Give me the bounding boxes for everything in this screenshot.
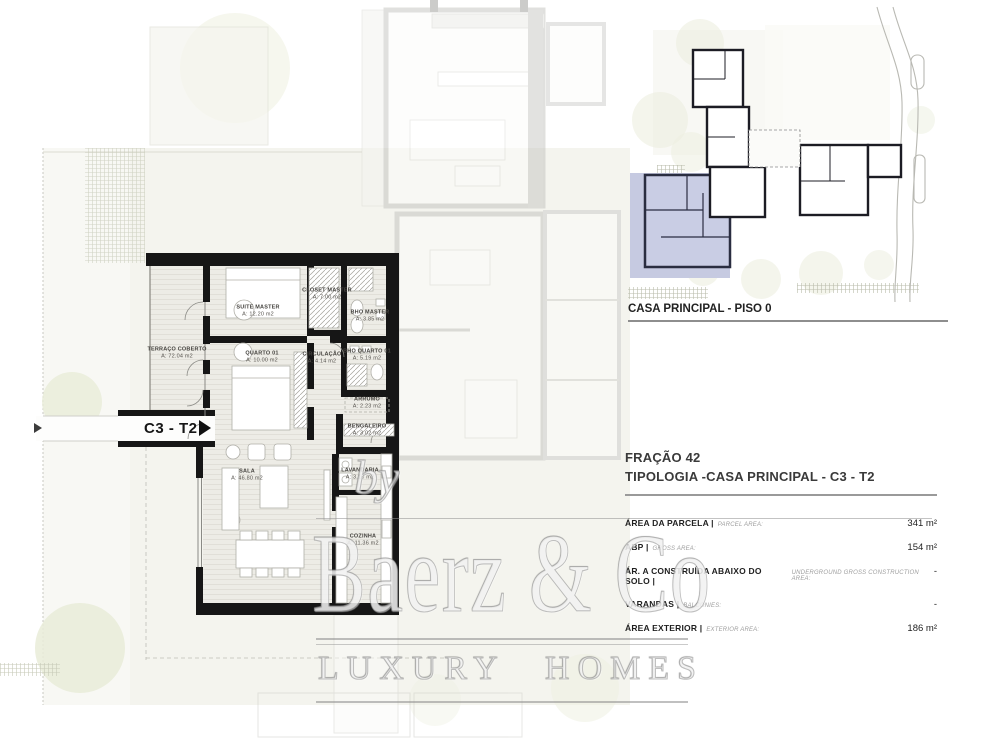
room-label-lavandaria: LAVANDARIAA: 3.10 m2 — [341, 468, 379, 483]
room-label-sala: SALAA: 46.80 m2 — [231, 469, 263, 484]
unit-tag-label: C3 - T2 — [144, 420, 198, 437]
room-label-bho-quarto: BHO QUARTO 01A: 5.19 m2 — [343, 349, 391, 364]
main-floor-plan — [0, 0, 630, 739]
detail-row-balconies: VARANDAS | BALCONIES: - — [625, 599, 937, 610]
floorplan-sheet: SUITE MASTERA: 12.20 m2 CLOSET MASTERA: … — [0, 0, 1000, 739]
room-label-quarto-01: QUARTO 01A: 10.00 m2 — [245, 351, 278, 366]
detail-row-exterior-area: ÁREA EXTERIOR | EXTERIOR AREA: 186 m² — [625, 623, 937, 634]
detail-row-parcel-area: ÁREA DA PARCELA | PARCEL AREA: 341 m² — [625, 518, 937, 529]
unit-tag-arrow-icon — [199, 420, 211, 436]
details-panel: FRAÇÃO 42 TIPOLOGIA -CASA PRINCIPAL - C3… — [625, 449, 937, 647]
typology-title: TIPOLOGIA -CASA PRINCIPAL - C3 - T2 — [625, 468, 937, 487]
room-label-suite-master: SUITE MASTERA: 12.20 m2 — [236, 305, 279, 320]
room-label-bho-master: BHO MASTERA: 3.85 m2 — [351, 310, 390, 325]
room-label-arrumo: ARRUMOA: 2.23 m2 — [353, 397, 382, 412]
room-label-cozinha: COZINHAA: 11.36 m2 — [347, 534, 378, 549]
detail-row-gross-area: ABP | GROSS AREA: 154 m² — [625, 542, 937, 553]
room-label-terraco: TERRAÇO COBERTOA: 72.04 m2 — [147, 347, 206, 362]
fraction-title: FRAÇÃO 42 — [625, 449, 937, 468]
section-arrow-icon — [34, 423, 42, 433]
details-rows: ÁREA DA PARCELA | PARCEL AREA: 341 m² AB… — [625, 518, 937, 634]
room-label-circulacao: CIRCULAÇÃOA: 4.14 m2 — [303, 352, 342, 367]
site-plan — [625, 5, 955, 305]
room-label-bengaleiro: BENGALEIROA: 3.02 m2 — [348, 424, 387, 439]
room-label-closet-master: CLOSET MASTERA: 7.00 m2 — [302, 288, 352, 303]
site-plan-caption: CASA PRINCIPAL - PISO 0 — [628, 303, 948, 322]
detail-row-underground-area: ÁR. A CONSTRUÍDA ABAIXO DO SOLO | UNDERG… — [625, 566, 937, 586]
details-rule — [625, 494, 937, 496]
